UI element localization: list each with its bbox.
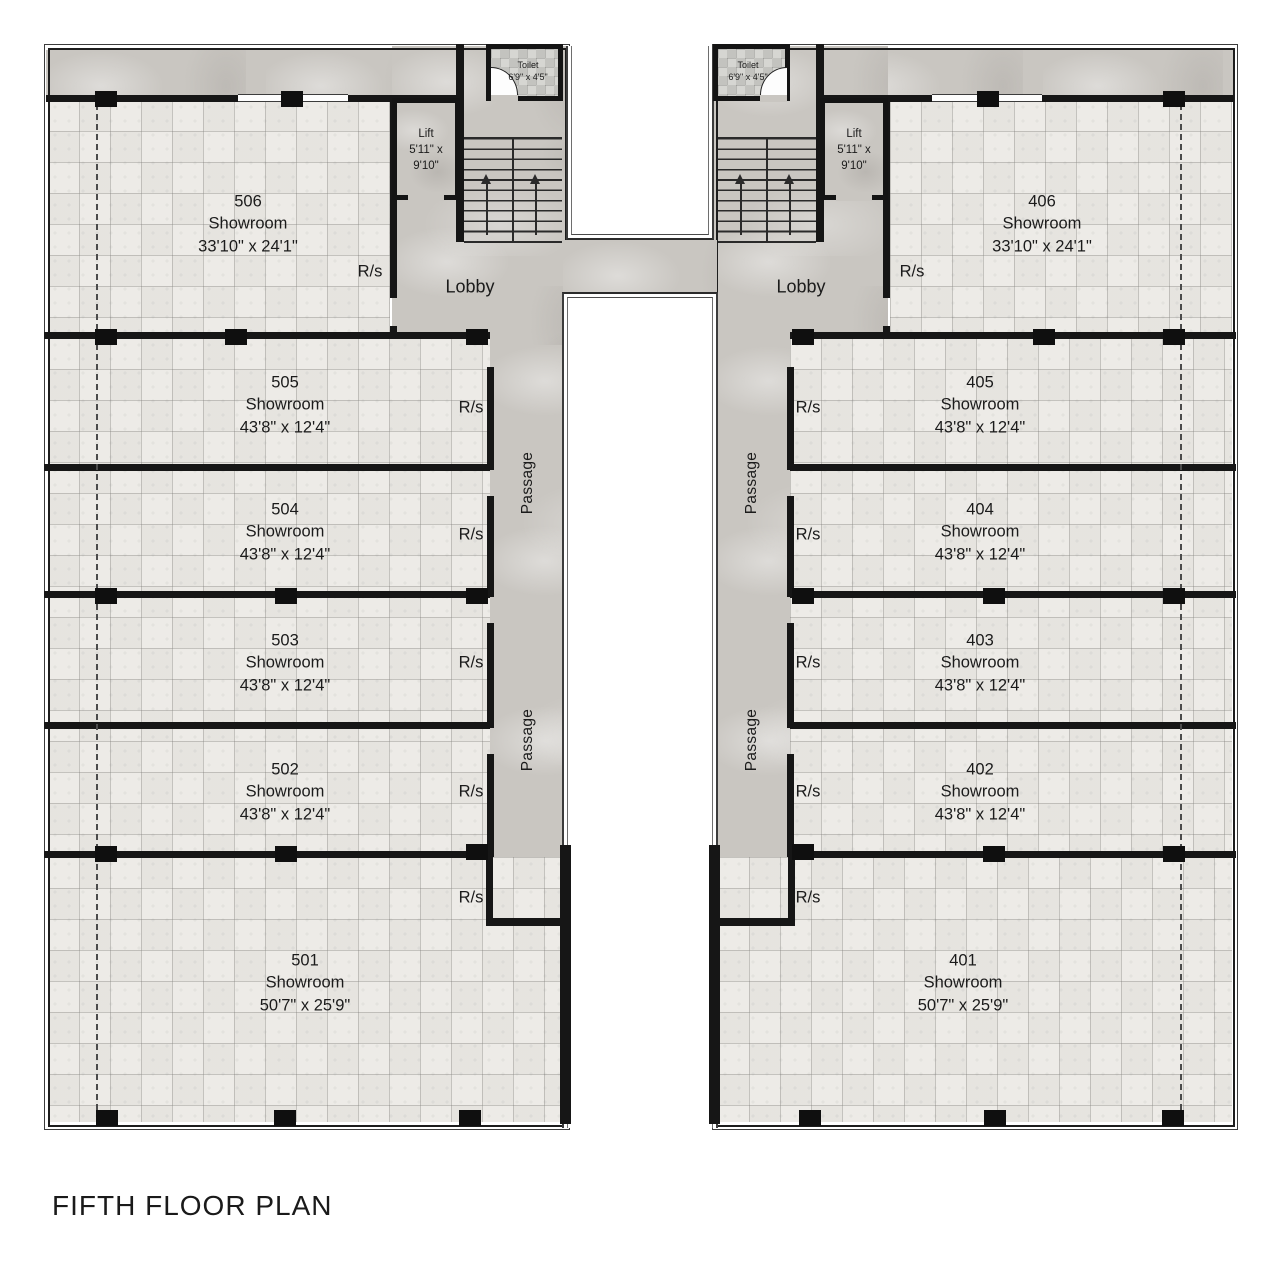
room-number: 505 [240,371,331,393]
column-marker [95,329,117,345]
room-type: Showroom [260,972,351,994]
room-label-406: 406 Showroom 33'10" x 24'1" [992,190,1092,257]
column-marker [275,588,297,604]
lift-name: Lift [823,126,885,142]
column-marker [466,844,488,860]
column-marker [792,844,814,860]
column-marker [275,846,297,862]
toilet-door-gap-left [491,95,518,102]
room-number: 506 [198,190,298,212]
room-label-403: 403 Showroom 43'8" x 12'4" [935,629,1026,696]
wall [487,623,494,728]
room-label-502: 502 Showroom 43'8" x 12'4" [240,758,331,825]
lift-label-right: Lift 5'11" x 9'10" [823,126,885,174]
column-marker [274,1110,296,1126]
rs-label: R/s [459,526,484,545]
lift-label-left: Lift 5'11" x 9'10" [395,126,457,174]
rs-label: R/s [459,654,484,673]
toilet-name: Toilet [495,59,561,71]
room-number: 503 [240,629,331,651]
room-label-505: 505 Showroom 43'8" x 12'4" [240,371,331,438]
room-label-401: 401 Showroom 50'7" x 25'9" [918,949,1009,1016]
rs-label: R/s [796,783,821,802]
room-label-402: 402 Showroom 43'8" x 12'4" [935,758,1026,825]
room-type: Showroom [935,652,1026,674]
room-number: 402 [935,758,1026,780]
room-size: 43'8" x 12'4" [240,674,331,696]
wall [787,623,794,728]
lift-size: 5'11" x 9'10" [823,142,885,174]
room-number: 501 [260,949,351,971]
room-size: 33'10" x 24'1" [198,235,298,257]
column-marker [792,329,814,345]
rs-label: R/s [796,889,821,908]
column-marker [281,91,303,107]
room-type: Showroom [240,521,331,543]
room-number: 502 [240,758,331,780]
rs-label: R/s [459,889,484,908]
room-type: Showroom [240,652,331,674]
lobby-label-right: Lobby [776,277,825,298]
room-size: 33'10" x 24'1" [992,235,1092,257]
passage-label: Passage [743,709,761,771]
passage-label: Passage [519,452,537,514]
toilet-label-left: Toilet 6'9" x 4'5" [495,59,561,83]
toilet-size: 6'9" x 4'5" [495,71,561,83]
column-marker [95,846,117,862]
room-type: Showroom [240,394,331,416]
wall [486,918,571,926]
rs-label: R/s [459,399,484,418]
rs-label: R/s [796,654,821,673]
rs-label: R/s [459,783,484,802]
wall [787,754,794,857]
wall [709,845,720,1124]
rs-label: R/s [900,263,925,282]
column-marker [466,588,488,604]
lift-door-left [408,194,444,201]
dashed-grid-line-right [1180,104,1182,1120]
room-size: 43'8" x 12'4" [240,803,331,825]
wall [487,496,494,597]
room-size: 50'7" x 25'9" [260,994,351,1016]
column-marker [983,588,1005,604]
room-type: Showroom [935,394,1026,416]
open-void-upper [566,46,714,240]
rs-label: R/s [796,526,821,545]
column-marker [977,91,999,107]
lift-size: 5'11" x 9'10" [395,142,457,174]
room-label-503: 503 Showroom 43'8" x 12'4" [240,629,331,696]
toilet-name: Toilet [715,59,781,71]
room-type: Showroom [918,972,1009,994]
wall [560,845,571,1124]
lift-door-right [836,194,872,201]
room-size: 43'8" x 12'4" [240,416,331,438]
passage-label: Passage [743,452,761,514]
room-size: 43'8" x 12'4" [935,674,1026,696]
stair-up-arrow [535,183,537,235]
wall [44,464,490,471]
room-type: Showroom [240,781,331,803]
rs-label: R/s [358,263,383,282]
toilet-label-right: Toilet 6'9" x 4'5" [715,59,781,83]
lobby-label-left: Lobby [445,277,494,298]
column-marker [466,329,488,345]
column-marker [96,1110,118,1126]
column-marker [1163,846,1185,862]
room-label-506: 506 Showroom 33'10" x 24'1" [198,190,298,257]
room-type: Showroom [935,781,1026,803]
room-type: Showroom [992,213,1092,235]
column-marker [95,588,117,604]
wall [710,918,794,926]
room-number: 504 [240,498,331,520]
room-label-404: 404 Showroom 43'8" x 12'4" [935,498,1026,565]
column-marker [1163,91,1185,107]
column-marker [983,846,1005,862]
column-marker [459,1110,481,1126]
stair-up-arrow [789,183,791,235]
passage-floor-left [490,345,566,925]
room-size: 43'8" x 12'4" [240,543,331,565]
page-title: FIFTH FLOOR PLAN [52,1190,332,1222]
toilet-door-gap-right [760,95,787,102]
passage-floor-right [714,345,790,925]
wall [790,722,1236,729]
room-size: 43'8" x 12'4" [935,543,1026,565]
passage-label: Passage [519,709,537,771]
toilet-size: 6'9" x 4'5" [715,71,781,83]
lobby-bridge [563,240,717,292]
floor-plan: 506 Showroom 33'10" x 24'1" 505 Showroom… [0,0,1280,1280]
room-label-405: 405 Showroom 43'8" x 12'4" [935,371,1026,438]
open-void-lower [562,292,718,1128]
room-size: 43'8" x 12'4" [935,416,1026,438]
room-number: 405 [935,371,1026,393]
column-marker [1163,588,1185,604]
column-marker [984,1110,1006,1126]
lift-name: Lift [395,126,457,142]
column-marker [1033,329,1055,345]
staircase-left [464,137,562,243]
room-label-501: 501 Showroom 50'7" x 25'9" [260,949,351,1016]
column-marker [1163,329,1185,345]
wall [487,754,494,857]
column-marker [792,588,814,604]
wall [390,326,397,339]
dashed-grid-line-left [96,104,98,1120]
room-number: 404 [935,498,1026,520]
room-size: 50'7" x 25'9" [918,994,1009,1016]
column-marker [799,1110,821,1126]
wall [790,464,1236,471]
wall [883,326,890,339]
column-marker [225,329,247,345]
room-number: 403 [935,629,1026,651]
wall [487,367,494,470]
wall [787,496,794,597]
room-number: 401 [918,949,1009,971]
staircase-right [718,137,816,243]
stair-divider [512,138,514,242]
stair-divider [766,138,768,242]
room-number: 406 [992,190,1092,212]
stair-up-arrow [486,183,488,235]
rs-label: R/s [796,399,821,418]
column-marker [95,91,117,107]
wall [787,367,794,470]
room-type: Showroom [198,213,298,235]
room-label-504: 504 Showroom 43'8" x 12'4" [240,498,331,565]
stair-up-arrow [740,183,742,235]
wall [44,722,490,729]
room-size: 43'8" x 12'4" [935,803,1026,825]
column-marker [1162,1110,1184,1126]
room-type: Showroom [935,521,1026,543]
